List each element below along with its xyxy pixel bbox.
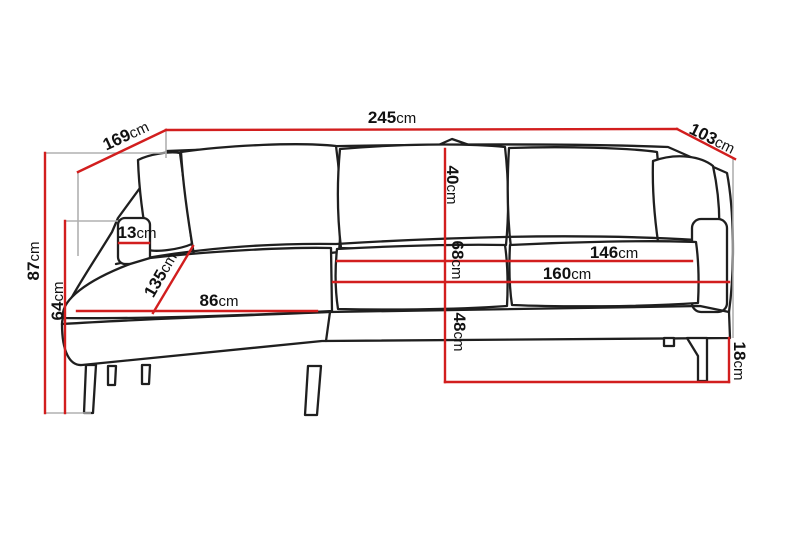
dim-label-160: 160cm (543, 265, 591, 283)
dim-label-48: 48cm (450, 313, 468, 352)
dim-label-13: 13cm (118, 224, 157, 242)
dim-label-245: 245cm (368, 109, 416, 127)
back-pillow-2 (338, 145, 508, 250)
sofa-dimension-diagram: 245cm 169cm 103cm 87cm 64cm 13cm 135cm 8… (0, 0, 800, 533)
seat-cushion-1 (336, 245, 508, 310)
dim-label-68: 68cm (448, 241, 466, 280)
dim-label-86: 86cm (200, 292, 239, 310)
dim-label-146: 146cm (590, 244, 638, 262)
dim-label-87: 87cm (25, 242, 43, 281)
back-pillow-1 (181, 144, 341, 257)
leg-front-left (84, 365, 96, 413)
dim-label-40: 40cm (443, 166, 461, 205)
leg-back-left-1 (108, 366, 116, 385)
leg-front-right (687, 338, 707, 381)
dim-label-64: 64cm (49, 282, 67, 321)
leg-chaise-front (305, 366, 321, 415)
diagram-canvas (0, 0, 800, 533)
dim-label-18: 18cm (730, 342, 748, 381)
leg-back-right (664, 338, 674, 346)
dim-line-245 (166, 129, 677, 130)
leg-back-left-2 (142, 365, 150, 384)
